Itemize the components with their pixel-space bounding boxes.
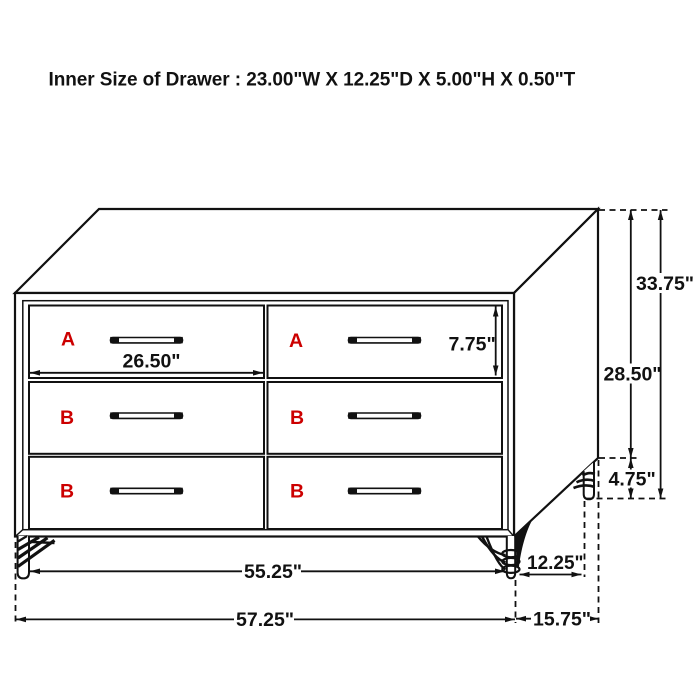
- svg-text:B: B: [290, 407, 304, 429]
- svg-text:4.75": 4.75": [609, 469, 656, 491]
- svg-text:26.50": 26.50": [123, 350, 181, 372]
- svg-text:B: B: [60, 407, 74, 429]
- svg-text:28.50": 28.50": [604, 364, 662, 386]
- svg-text:55.25": 55.25": [244, 561, 302, 583]
- svg-text:33.75": 33.75": [636, 273, 694, 295]
- svg-text:A: A: [289, 330, 303, 352]
- svg-text:15.75": 15.75": [533, 609, 591, 631]
- svg-text:12.25": 12.25": [527, 553, 584, 574]
- svg-text:A: A: [61, 329, 75, 351]
- svg-text:7.75": 7.75": [449, 333, 496, 355]
- svg-text:B: B: [290, 481, 304, 503]
- svg-text:Inner Size of Drawer : 23.00"W: Inner Size of Drawer : 23.00"W X 12.25"D…: [49, 70, 576, 91]
- svg-text:57.25": 57.25": [236, 609, 294, 631]
- svg-text:B: B: [60, 481, 74, 503]
